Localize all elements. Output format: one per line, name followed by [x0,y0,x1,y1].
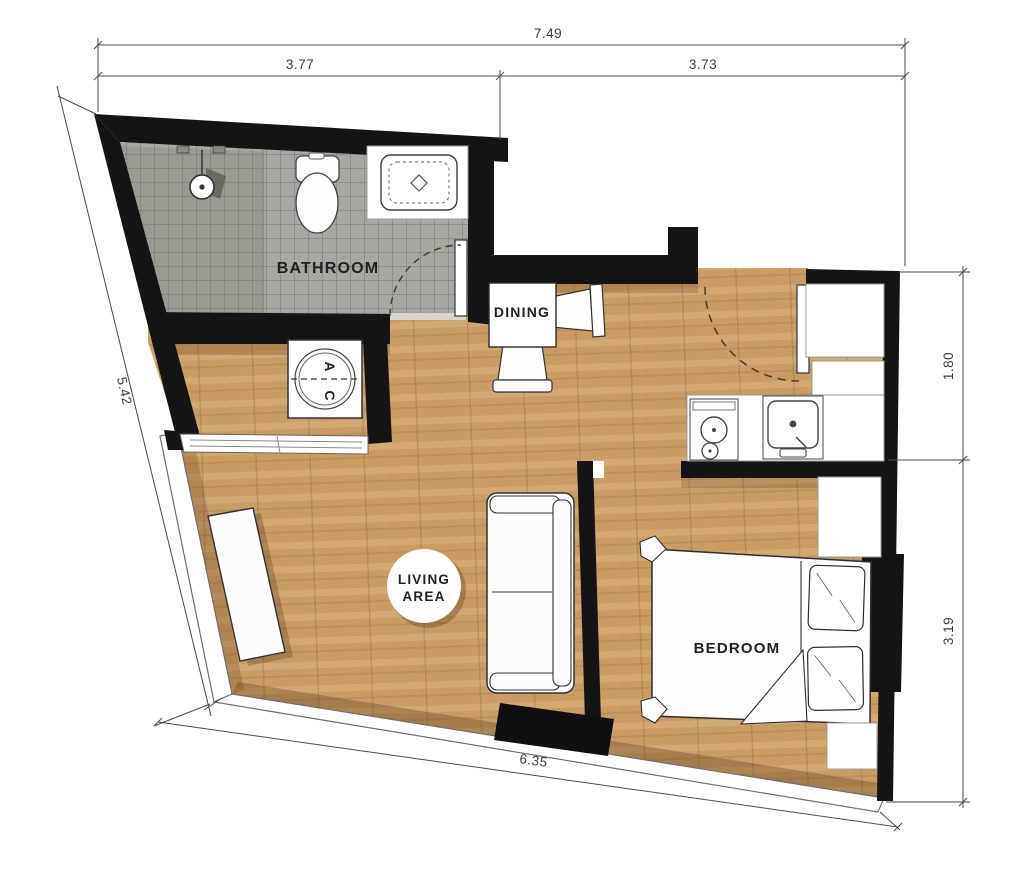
shower-valve [177,146,189,153]
dim-bottom: 6.35 [519,751,549,770]
pillow [808,565,865,631]
dining-chair-right-back [590,284,605,337]
burner-small-dot [708,449,711,452]
dim-left: 5.42 [114,376,135,407]
toilet-button [309,153,324,159]
shower-head-dot [199,184,204,189]
entry-door [705,285,809,381]
wall-bathroom-south [150,312,390,344]
dim-top-right: 3.73 [689,57,717,72]
dim-right-lower: 3.19 [941,617,956,645]
sink-faucet [780,449,806,457]
kitchen [687,284,884,461]
bedroom-label: BEDROOM [694,640,781,657]
stove-controls [693,402,735,410]
dim-top-total: 7.49 [534,26,562,41]
wall-entry-west [468,255,668,284]
burner-large-dot [712,428,716,432]
dining-chair-bottom-seat [498,345,547,380]
sofa-backrest [553,500,571,686]
dining-chair-right-seat [551,289,593,331]
dim-top-left: 3.77 [286,57,314,72]
living-label-line2: AREA [402,589,445,604]
floor-plan: A C DINING [0,0,1024,883]
ac-label-c: C [322,390,338,401]
dim-right-upper: 1.80 [941,352,956,380]
dining-chair-bottom-back [493,380,552,392]
floorplan-svg: A C DINING [0,0,1024,883]
living-label-line1: LIVING [398,572,450,587]
entry-door-swing [705,287,799,381]
sink-drain [790,421,797,428]
shower-valve [213,146,225,153]
wall-kitchen-south [681,461,884,478]
bathroom-door-leaf [455,240,467,316]
ac-louver-doors [180,434,368,454]
wardrobe [806,284,884,357]
door-jamb [593,461,604,478]
dresser [818,477,881,557]
sofa-armrest-top [490,496,560,513]
wall-entry-notch [668,227,698,284]
dining-set: DINING [489,283,605,392]
bathroom-door-swing [390,245,461,316]
toilet-bowl [296,173,338,233]
ac-closet: A C [180,340,368,454]
wall-partition [577,461,601,721]
nightstand [827,723,877,769]
bedroom-furniture: BEDROOM [640,477,881,769]
dining-label: DINING [494,304,550,320]
sofa-armrest-bottom [490,673,560,690]
bathroom-label: BATHROOM [277,260,380,277]
ac-label-a: A [322,361,338,372]
wardrobe-2 [812,361,884,397]
